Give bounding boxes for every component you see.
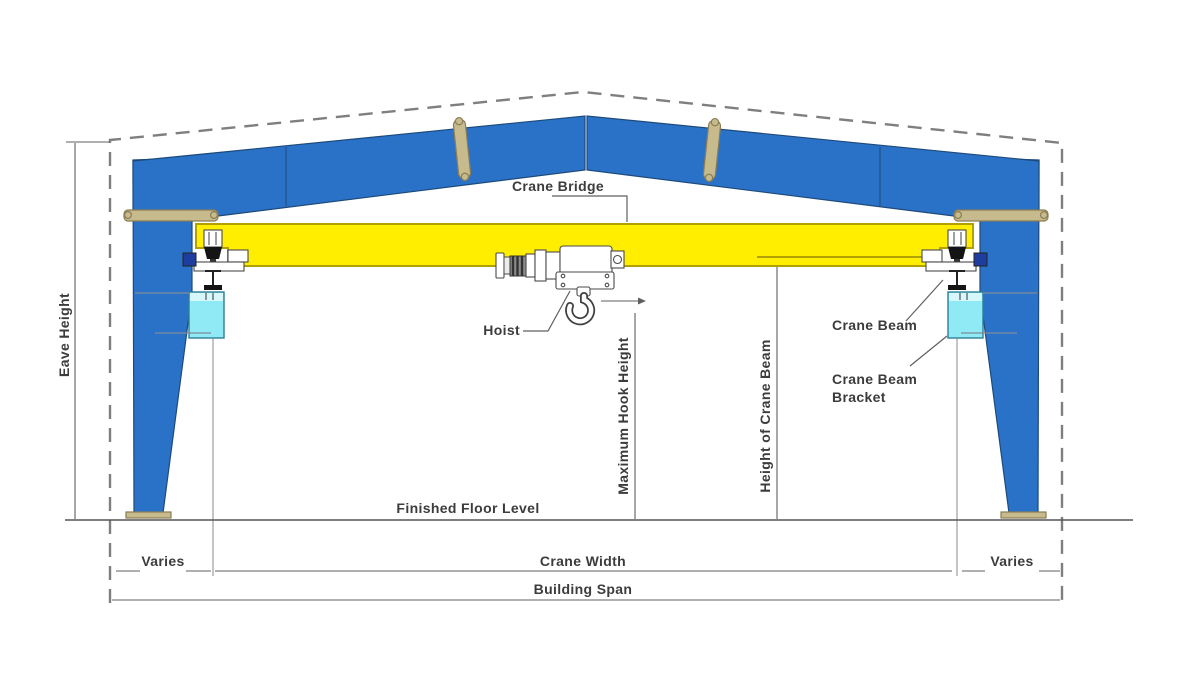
- hoist-leader: [523, 291, 570, 331]
- label-eave-height: Eave Height: [56, 293, 72, 377]
- label-crane-beam: Crane Beam: [832, 317, 917, 333]
- crane-beam-bracket-leader: [910, 336, 947, 366]
- crane-diagram: Eave Height Crane Bridge Hoist Crane Bea…: [0, 0, 1200, 700]
- label-finished-floor-level: Finished Floor Level: [396, 500, 539, 516]
- label-varies-right: Varies: [990, 553, 1033, 569]
- eave-height-dimension: [66, 142, 110, 519]
- crane-beam-leader: [906, 280, 943, 321]
- hook-icon: [569, 287, 591, 321]
- label-height-of-crane-beam: Height of Crane Beam: [757, 339, 773, 492]
- label-crane-bridge: Crane Bridge: [512, 178, 604, 194]
- right-crane-beam-bracket: [948, 292, 983, 338]
- label-maximum-hook-height: Maximum Hook Height: [615, 337, 631, 495]
- label-crane-beam-bracket-line1: Crane Beam: [832, 371, 917, 387]
- label-crane-width: Crane Width: [540, 553, 626, 569]
- hoist-body: [560, 246, 612, 274]
- label-crane-beam-bracket-line2: Bracket: [832, 389, 886, 405]
- label-hoist: Hoist: [483, 322, 520, 338]
- left-crane-beam-bracket: [189, 292, 224, 338]
- left-column-base-plate: [126, 512, 171, 518]
- right-column-base-plate: [1001, 512, 1046, 518]
- right-rafter: [587, 116, 1039, 216]
- label-building-span: Building Span: [534, 581, 633, 597]
- left-crane-beam-web: [205, 271, 221, 286]
- crane-bridge-leader: [552, 196, 627, 222]
- crane-diagram-page: Eave Height Crane Bridge Hoist Crane Bea…: [0, 0, 1200, 700]
- left-knee-plate: [124, 210, 218, 221]
- label-varies-left: Varies: [141, 553, 184, 569]
- right-knee-plate: [954, 210, 1048, 221]
- right-crane-beam-web: [949, 271, 965, 286]
